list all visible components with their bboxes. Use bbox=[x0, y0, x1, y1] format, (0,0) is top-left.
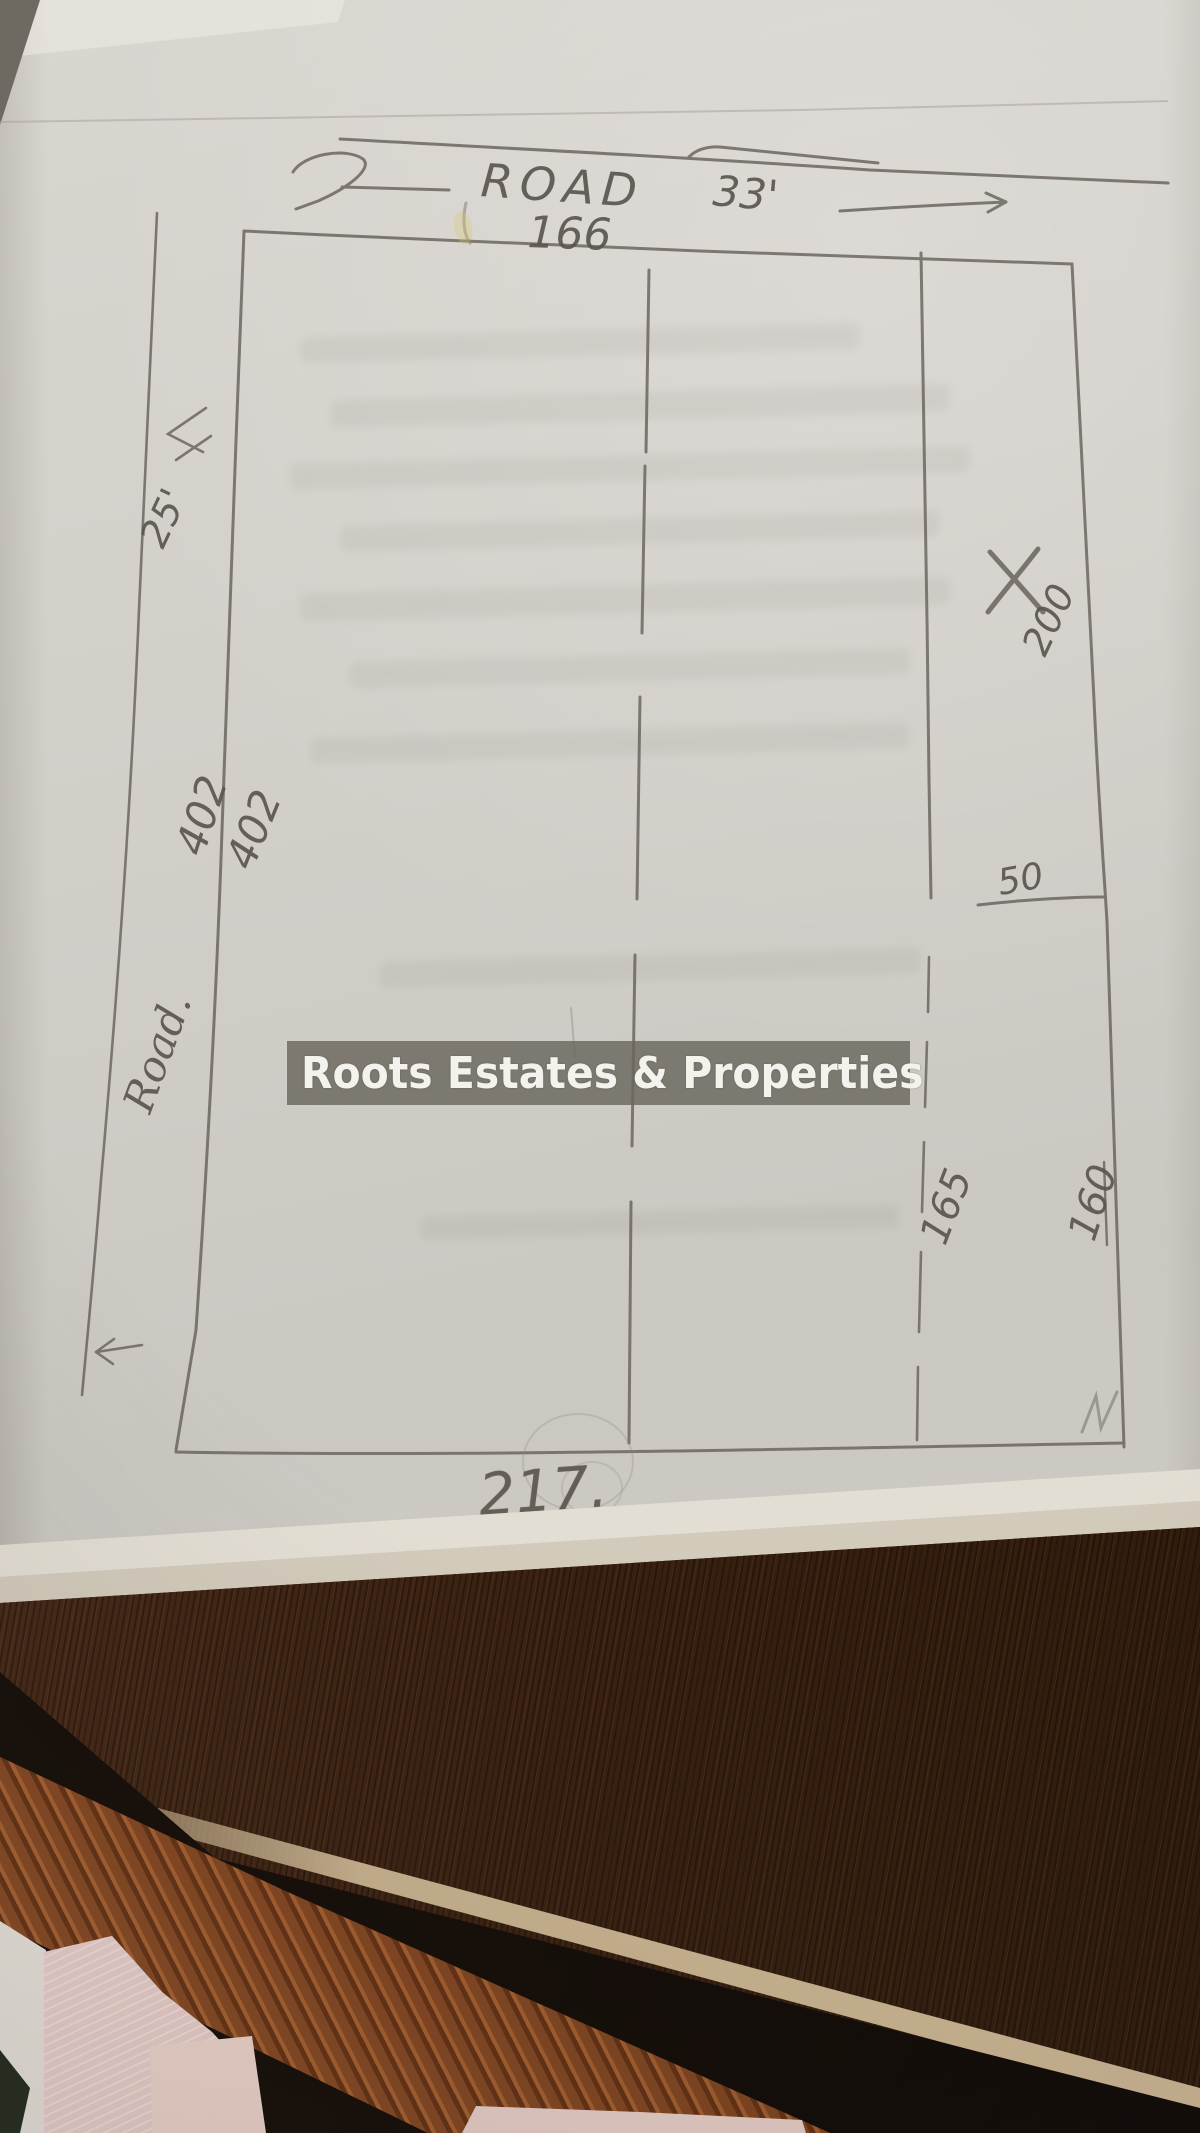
notch-line-50 bbox=[978, 897, 1103, 905]
left-road-outer-line bbox=[82, 213, 157, 1395]
plot-bottom-edge bbox=[176, 1443, 1124, 1454]
plot-top-edge bbox=[244, 231, 1072, 264]
top-road-left-arrow bbox=[293, 153, 449, 209]
right-divider-upper bbox=[921, 253, 931, 898]
watermark: Roots Estates & Properties bbox=[287, 1041, 910, 1105]
paper-crease bbox=[0, 101, 1168, 122]
label-top-length: 166 bbox=[527, 207, 613, 261]
label-top-road-width: 33' bbox=[711, 166, 780, 220]
label-left-road-name: Road. bbox=[113, 987, 201, 1120]
center-divider-segment bbox=[646, 270, 649, 452]
check-scribble bbox=[1082, 1392, 1117, 1432]
plot-right-border bbox=[1072, 264, 1124, 1447]
left-road-down-arrow bbox=[96, 1339, 142, 1364]
center-divider-segment bbox=[637, 697, 640, 899]
label-notch-width: 50 bbox=[994, 856, 1046, 904]
center-divider-segment bbox=[629, 1202, 631, 1443]
photo-of-plot-sketch: ROAD 33' 166 25' 402 402 Road. 200 50 16… bbox=[0, 0, 1200, 2133]
watermark-text: Roots Estates & Properties bbox=[301, 1048, 923, 1099]
left-road-up-arrow bbox=[168, 408, 211, 460]
center-divider-segment bbox=[642, 466, 645, 633]
top-road-right-arrow bbox=[840, 193, 1006, 212]
